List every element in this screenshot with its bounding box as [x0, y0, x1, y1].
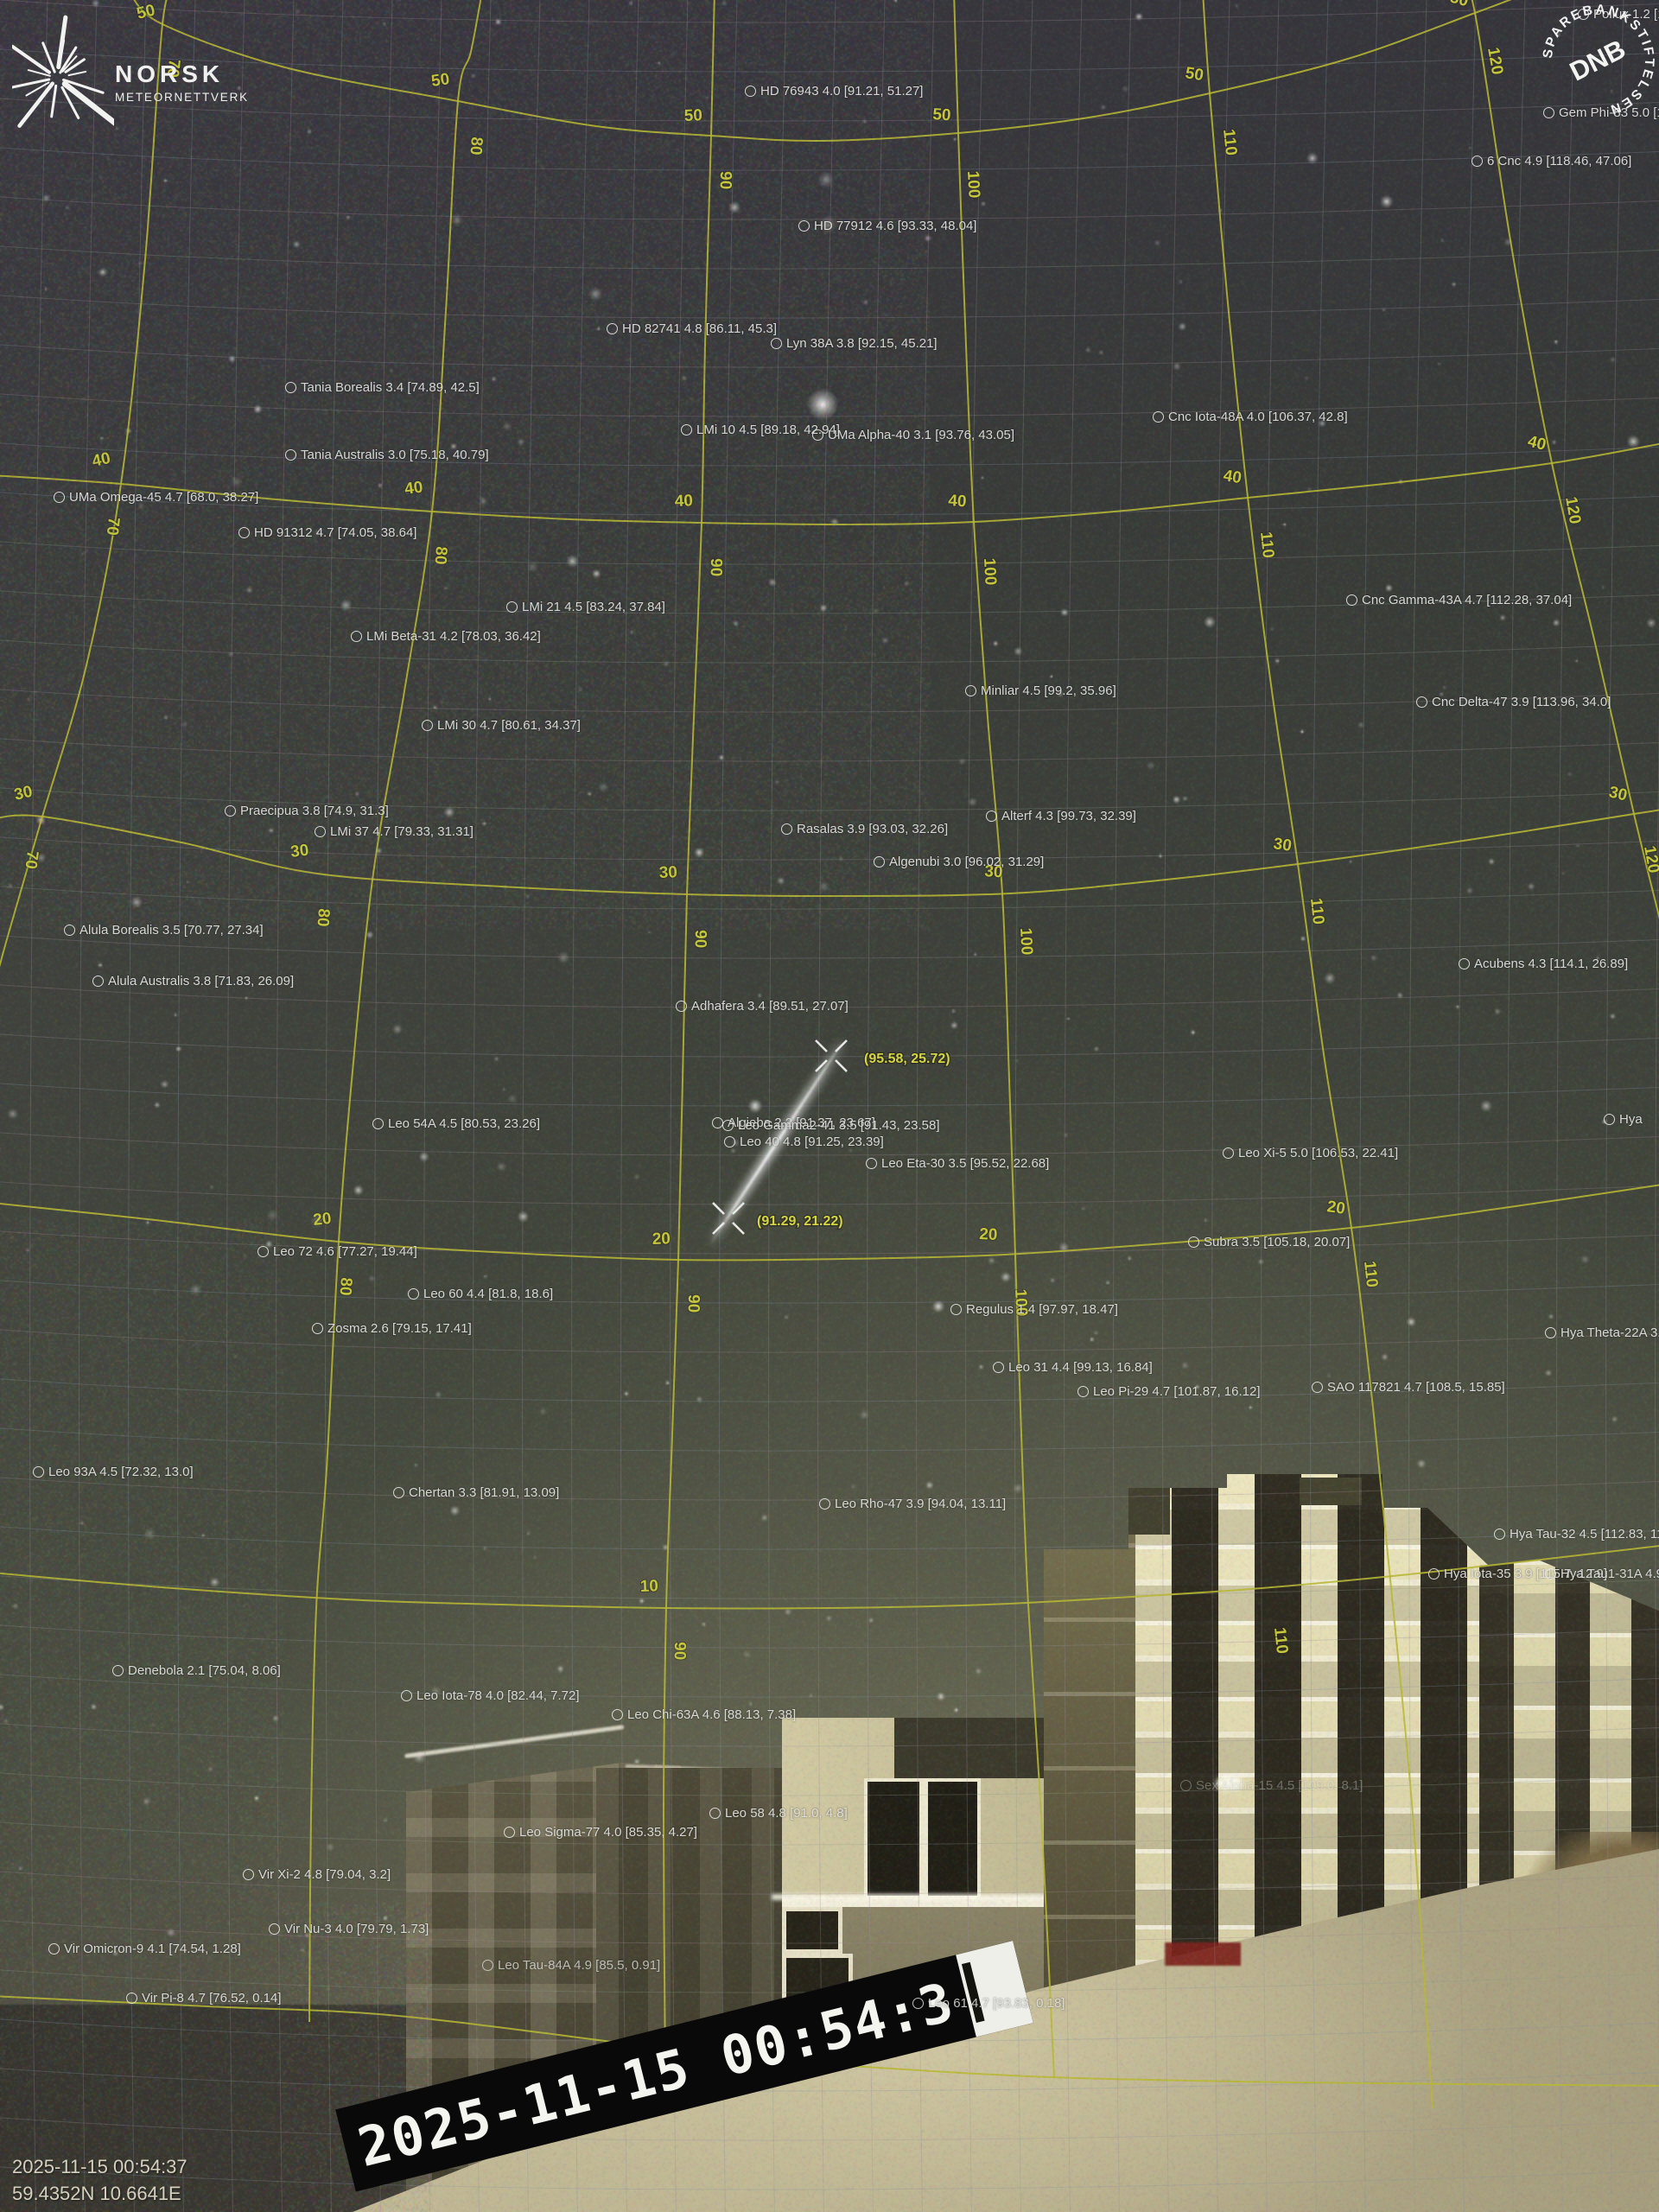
star-label: Hya Theta-22A 3.9 [115.5, 17.3]	[1545, 1325, 1659, 1340]
frame-footer: 2025-11-15 00:54:37 59.4352N 10.6641E	[12, 2153, 188, 2207]
star-label-text: Leo 54A 4.5 [80.53, 23.26]	[388, 1116, 540, 1131]
star-label: Leo Eta-30 3.5 [95.52, 22.68]	[866, 1156, 1049, 1171]
star-label: Alula Borealis 3.5 [70.77, 27.34]	[64, 923, 264, 938]
star-label: Leo Xi-5 5.0 [106.53, 22.41]	[1223, 1146, 1398, 1160]
star-circle-icon	[401, 1690, 412, 1701]
star-circle-icon	[351, 631, 362, 642]
star-circle-icon	[243, 1869, 254, 1880]
star-circle-icon	[993, 1362, 1004, 1373]
star-label-text: Leo 93A 4.5 [72.32, 13.0]	[48, 1465, 194, 1479]
star-circle-icon	[504, 1827, 515, 1838]
star-label: LMi Beta-31 4.2 [78.03, 36.42]	[351, 629, 541, 644]
star-circle-icon	[1545, 1568, 1556, 1580]
allsky-camera-frame: 5070508050905010050110501204070408040904…	[0, 0, 1659, 2212]
star-label-text: Minliar 4.5 [99.2, 35.96]	[981, 683, 1116, 698]
star-label: Tania Australis 3.0 [75.18, 40.79]	[285, 448, 489, 462]
star-circle-icon	[607, 323, 618, 334]
star-circle-icon	[612, 1709, 623, 1720]
logo-subtitle: METEORNETTVERK	[115, 91, 249, 104]
star-circle-icon	[238, 527, 250, 538]
star-label: Leo 60 4.4 [81.8, 18.6]	[408, 1287, 553, 1301]
star-label: Vir Nu-3 4.0 [79.79, 1.73]	[269, 1922, 429, 1936]
star-label-text: Cnc Iota-48A 4.0 [106.37, 42.8]	[1168, 410, 1348, 424]
star-label-text: Chertan 3.3 [81.91, 13.09]	[409, 1485, 559, 1500]
star-label-text: Leo Pi-29 4.7 [101.87, 16.12]	[1093, 1384, 1260, 1399]
star-label-text: Leo Xi-5 5.0 [106.53, 22.41]	[1238, 1146, 1398, 1160]
star-label-text: Hya Theta-22A 3.9 [115.5, 17.3]	[1560, 1325, 1659, 1340]
star-circle-icon	[269, 1923, 280, 1935]
sponsor-logo: SPAREBANKSTIFTELSEN DNB	[1531, 0, 1659, 131]
star-circle-icon	[724, 1136, 735, 1147]
star-circle-icon	[781, 823, 792, 835]
star-label: Vir Omicron-9 4.1 [74.54, 1.28]	[48, 1942, 241, 1956]
star-label: Acubens 4.3 [114.1, 26.89]	[1459, 957, 1628, 971]
star-label: HD 77912 4.6 [93.33, 48.04]	[798, 219, 976, 233]
footer-timestamp: 2025-11-15 00:54:37	[12, 2153, 188, 2180]
star-label-text: Sex Alpha-15 4.5 [109.0, 8.1]	[1196, 1778, 1363, 1793]
star-label-text: Praecipua 3.8 [74.9, 31.3]	[240, 804, 389, 818]
star-circle-icon	[48, 1943, 60, 1955]
star-circle-icon	[950, 1304, 962, 1315]
star-label: Hya Tau-32 4.5 [112.83, 11.9]	[1494, 1527, 1659, 1541]
star-label: Cnc Iota-48A 4.0 [106.37, 42.8]	[1153, 410, 1348, 424]
star-label: Leo 93A 4.5 [72.32, 13.0]	[33, 1465, 194, 1479]
star-label: Cnc Gamma-43A 4.7 [112.28, 37.04]	[1346, 593, 1572, 607]
star-label: Leo 72 4.6 [77.27, 19.44]	[257, 1244, 417, 1259]
star-label: Leo 58 4.8 [91.0, 4.8]	[709, 1806, 848, 1821]
star-label: Zosma 2.6 [79.15, 17.41]	[312, 1321, 472, 1336]
star-label: Leo 61 4.7 [93.83, 0.18]	[912, 1996, 1065, 2011]
logo-title: NORSK	[115, 60, 224, 88]
star-label-text: Subra 3.5 [105.18, 20.07]	[1204, 1235, 1350, 1249]
star-circle-icon	[126, 1993, 137, 2004]
star-label: 6 Cnc 4.9 [118.46, 47.06]	[1471, 154, 1631, 168]
star-circle-icon	[1494, 1529, 1505, 1540]
star-circle-icon	[33, 1466, 44, 1478]
star-label: UMa Omega-45 4.7 [68.0, 38.27]	[54, 490, 258, 505]
star-circle-icon	[986, 810, 997, 822]
star-label: Sex Alpha-15 4.5 [109.0, 8.1]	[1180, 1778, 1363, 1793]
star-label-text: HD 76943 4.0 [91.21, 51.27]	[760, 84, 923, 99]
star-label: Leo Chi-63A 4.6 [88.13, 7.38]	[612, 1707, 796, 1722]
star-label-text: Leo Rho-47 3.9 [94.04, 13.11]	[835, 1497, 1006, 1511]
star-label-text: HD 82741 4.8 [86.11, 45.3]	[622, 321, 777, 336]
star-label: LMi 21 4.5 [83.24, 37.84]	[506, 600, 665, 614]
star-label: SAO 117821 4.7 [108.5, 15.85]	[1312, 1380, 1505, 1395]
star-circle-icon	[285, 382, 296, 393]
star-circle-icon	[681, 424, 692, 435]
star-circle-icon	[819, 1498, 830, 1510]
star-label: LMi 37 4.7 [79.33, 31.31]	[315, 824, 474, 839]
star-label: Cnc Delta-47 3.9 [113.96, 34.0]	[1416, 695, 1611, 709]
star-label-text: Vir Pi-8 4.7 [76.52, 0.14]	[142, 1991, 282, 2005]
star-annotations: HD 76943 4.0 [91.21, 51.27]Pollux 1.2 [1…	[0, 0, 1659, 2212]
star-circle-icon	[812, 429, 823, 441]
star-circle-icon	[866, 1158, 877, 1169]
star-circle-icon	[92, 976, 104, 987]
star-label-text: Hya Tau-32 4.5 [112.83, 11.9]	[1510, 1527, 1659, 1541]
star-circle-icon	[1545, 1327, 1556, 1338]
star-circle-icon	[912, 1998, 924, 2009]
star-label-text: HD 91312 4.7 [74.05, 38.64]	[254, 525, 416, 540]
star-circle-icon	[1188, 1236, 1199, 1248]
star-label-text: UMa Omega-45 4.7 [68.0, 38.27]	[69, 490, 258, 505]
star-label: Vir Xi-2 4.8 [79.04, 3.2]	[243, 1867, 391, 1882]
star-label-text: Alula Australis 3.8 [71.83, 26.09]	[108, 974, 294, 988]
star-label: LMi 30 4.7 [80.61, 34.37]	[422, 718, 581, 733]
star-circle-icon	[408, 1288, 419, 1300]
star-label-text: Leo Sigma-77 4.0 [85.35, 4.27]	[519, 1825, 697, 1840]
star-label-text: Leo Gamma2-41 3.5 [91.43, 23.58]	[738, 1118, 940, 1133]
star-circle-icon	[312, 1323, 323, 1334]
star-label-text: LMi 21 4.5 [83.24, 37.84]	[522, 600, 665, 614]
star-label: Leo Iota-78 4.0 [82.44, 7.72]	[401, 1688, 579, 1703]
star-circle-icon	[64, 925, 75, 936]
star-label-text: Hya Tau1-31A 4.9 [112.4, 12.5]	[1560, 1567, 1659, 1581]
star-label: Leo 31 4.4 [99.13, 16.84]	[993, 1360, 1153, 1375]
star-label-text: Regulus 1.4 [97.97, 18.47]	[966, 1302, 1118, 1317]
star-circle-icon	[1077, 1386, 1089, 1397]
star-label: Leo Pi-29 4.7 [101.87, 16.12]	[1077, 1384, 1260, 1399]
star-circle-icon	[874, 856, 885, 868]
star-label-text: Adhafera 3.4 [89.51, 27.07]	[691, 999, 849, 1014]
star-circle-icon	[506, 601, 518, 613]
star-label: UMa Alpha-40 3.1 [93.76, 43.05]	[812, 428, 1014, 442]
star-circle-icon	[112, 1665, 124, 1676]
star-circle-icon	[676, 1001, 687, 1012]
star-circle-icon	[965, 685, 976, 696]
star-label: Lyn 38A 3.8 [92.15, 45.21]	[771, 336, 938, 351]
star-circle-icon	[285, 449, 296, 461]
star-label: Leo Tau-84A 4.9 [85.5, 0.91]	[482, 1958, 660, 1973]
star-label: Algenubi 3.0 [96.02, 31.29]	[874, 855, 1044, 869]
star-circle-icon	[798, 220, 810, 232]
star-label: Praecipua 3.8 [74.9, 31.3]	[225, 804, 389, 818]
star-label: Tania Borealis 3.4 [74.89, 42.5]	[285, 380, 480, 395]
star-label-text: Tania Australis 3.0 [75.18, 40.79]	[301, 448, 489, 462]
star-label-text: Algenubi 3.0 [96.02, 31.29]	[889, 855, 1044, 869]
star-label-text: HD 77912 4.6 [93.33, 48.04]	[814, 219, 976, 233]
star-circle-icon	[315, 826, 326, 837]
star-label: Leo Sigma-77 4.0 [85.35, 4.27]	[504, 1825, 697, 1840]
star-circle-icon	[709, 1808, 721, 1819]
star-circle-icon	[225, 805, 236, 817]
star-label-text: Leo 40 4.8 [91.25, 23.39]	[740, 1135, 884, 1149]
star-circle-icon	[372, 1118, 384, 1129]
star-circle-icon	[1312, 1382, 1323, 1393]
star-circle-icon	[1180, 1780, 1192, 1791]
star-circle-icon	[422, 720, 433, 731]
star-circle-icon	[482, 1960, 493, 1971]
star-label-text: Leo 58 4.8 [91.0, 4.8]	[725, 1806, 848, 1821]
star-label-text: Leo 61 4.7 [93.83, 0.18]	[928, 1996, 1065, 2011]
star-circle-icon	[771, 338, 782, 349]
norsk-meteornettverk-logo: NORSK METEORNETTVERK	[12, 9, 271, 173]
star-label-text: Leo Eta-30 3.5 [95.52, 22.68]	[881, 1156, 1049, 1171]
star-label: Chertan 3.3 [81.91, 13.09]	[393, 1485, 559, 1500]
star-label: Leo 54A 4.5 [80.53, 23.26]	[372, 1116, 540, 1131]
star-circle-icon	[54, 492, 65, 503]
star-label-text: Leo 72 4.6 [77.27, 19.44]	[273, 1244, 417, 1259]
footer-coordinates: 59.4352N 10.6641E	[12, 2180, 188, 2207]
star-label-text: SAO 117821 4.7 [108.5, 15.85]	[1327, 1380, 1505, 1395]
star-circle-icon	[1604, 1114, 1615, 1125]
star-label-text: LMi Beta-31 4.2 [78.03, 36.42]	[366, 629, 541, 644]
star-label-text: Alterf 4.3 [99.73, 32.39]	[1001, 809, 1136, 823]
star-label-text: Zosma 2.6 [79.15, 17.41]	[327, 1321, 472, 1336]
star-label-text: Leo Chi-63A 4.6 [88.13, 7.38]	[627, 1707, 796, 1722]
star-label-text: Vir Omicron-9 4.1 [74.54, 1.28]	[64, 1942, 241, 1956]
star-label-text: Hya	[1619, 1112, 1643, 1127]
star-circle-icon	[1416, 696, 1427, 708]
star-label-text: Leo 31 4.4 [99.13, 16.84]	[1008, 1360, 1153, 1375]
star-label-text: UMa Alpha-40 3.1 [93.76, 43.05]	[828, 428, 1014, 442]
star-circle-icon	[1223, 1147, 1234, 1159]
star-label-text: Alula Borealis 3.5 [70.77, 27.34]	[79, 923, 264, 938]
star-label-text: Denebola 2.1 [75.04, 8.06]	[128, 1663, 281, 1678]
star-label-text: 6 Cnc 4.9 [118.46, 47.06]	[1487, 154, 1631, 168]
star-label: Leo Gamma2-41 3.5 [91.43, 23.58]	[722, 1118, 940, 1133]
star-circle-icon	[393, 1487, 404, 1498]
sponsor-center-text: DNB	[1565, 34, 1630, 87]
star-circle-icon	[1153, 411, 1164, 423]
star-label: Vir Pi-8 4.7 [76.52, 0.14]	[126, 1991, 282, 2005]
star-label: HD 82741 4.8 [86.11, 45.3]	[607, 321, 777, 336]
star-circle-icon	[257, 1246, 269, 1257]
star-circle-icon	[722, 1120, 734, 1131]
star-label: HD 91312 4.7 [74.05, 38.64]	[238, 525, 416, 540]
star-label-text: Lyn 38A 3.8 [92.15, 45.21]	[786, 336, 938, 351]
star-label-text: LMi 37 4.7 [79.33, 31.31]	[330, 824, 474, 839]
meteor-starburst-icon	[12, 9, 114, 160]
star-label: HD 76943 4.0 [91.21, 51.27]	[745, 84, 923, 99]
star-label: Denebola 2.1 [75.04, 8.06]	[112, 1663, 281, 1678]
star-label-text: Vir Xi-2 4.8 [79.04, 3.2]	[258, 1867, 391, 1882]
star-label-text: Cnc Gamma-43A 4.7 [112.28, 37.04]	[1362, 593, 1572, 607]
star-label-text: Cnc Delta-47 3.9 [113.96, 34.0]	[1432, 695, 1611, 709]
star-label-text: Rasalas 3.9 [93.03, 32.26]	[797, 822, 948, 836]
star-label: Minliar 4.5 [99.2, 35.96]	[965, 683, 1116, 698]
star-circle-icon	[1346, 594, 1357, 606]
star-circle-icon	[1428, 1568, 1440, 1580]
star-label-text: Acubens 4.3 [114.1, 26.89]	[1474, 957, 1628, 971]
star-label-text: Leo Iota-78 4.0 [82.44, 7.72]	[416, 1688, 579, 1703]
star-label: Subra 3.5 [105.18, 20.07]	[1188, 1235, 1350, 1249]
star-label: Alterf 4.3 [99.73, 32.39]	[986, 809, 1136, 823]
star-label: Rasalas 3.9 [93.03, 32.26]	[781, 822, 948, 836]
star-label: Leo Rho-47 3.9 [94.04, 13.11]	[819, 1497, 1006, 1511]
star-label: Alula Australis 3.8 [71.83, 26.09]	[92, 974, 294, 988]
star-label: Adhafera 3.4 [89.51, 27.07]	[676, 999, 849, 1014]
star-label-text: LMi 30 4.7 [80.61, 34.37]	[437, 718, 581, 733]
star-label: Regulus 1.4 [97.97, 18.47]	[950, 1302, 1118, 1317]
star-circle-icon	[1459, 958, 1470, 969]
star-label: Leo 40 4.8 [91.25, 23.39]	[724, 1135, 884, 1149]
star-circle-icon	[1471, 156, 1483, 167]
star-label-text: Tania Borealis 3.4 [74.89, 42.5]	[301, 380, 480, 395]
star-label: Hya Tau1-31A 4.9 [112.4, 12.5]	[1545, 1567, 1659, 1581]
star-label: Hya	[1604, 1112, 1643, 1127]
star-label-text: Leo 60 4.4 [81.8, 18.6]	[423, 1287, 553, 1301]
star-label-text: Vir Nu-3 4.0 [79.79, 1.73]	[284, 1922, 429, 1936]
star-label-text: Leo Tau-84A 4.9 [85.5, 0.91]	[498, 1958, 660, 1973]
star-circle-icon	[745, 86, 756, 97]
